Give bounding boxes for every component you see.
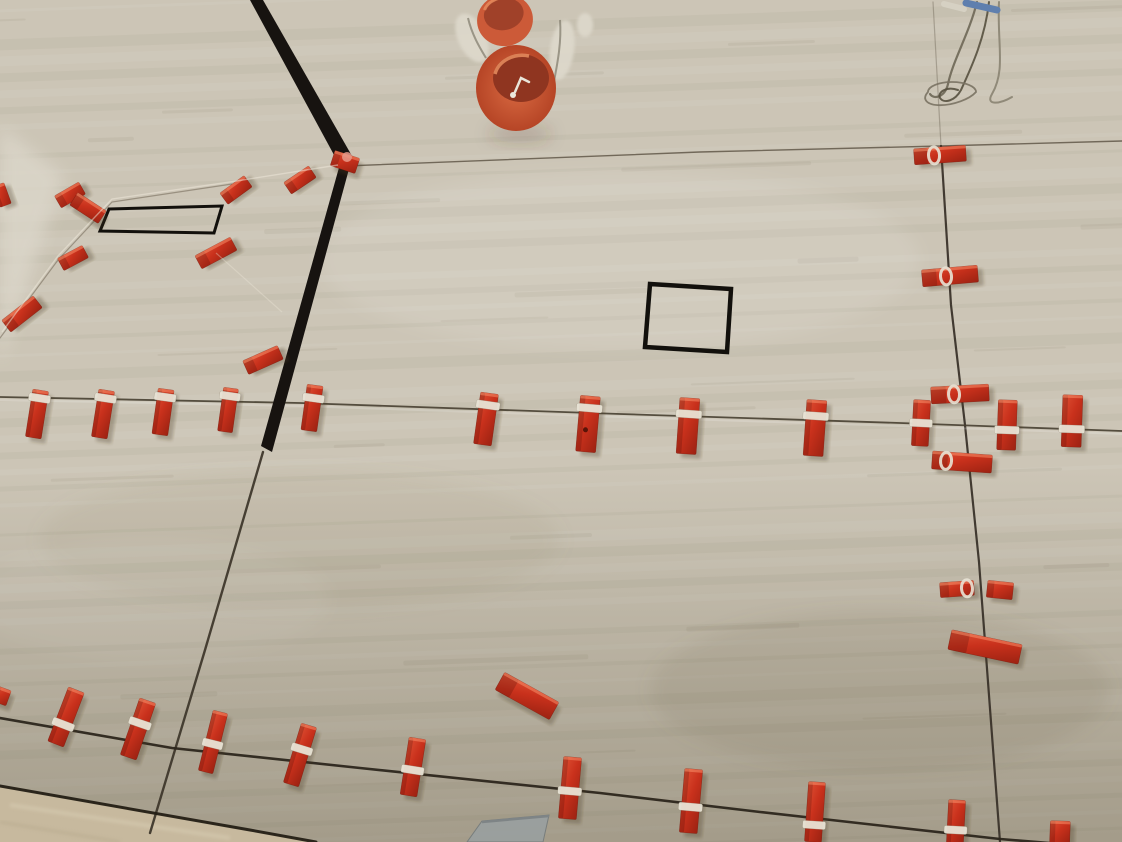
tile-leveling-wedge — [931, 451, 997, 477]
tile-leveling-clip — [1058, 395, 1088, 452]
clip-edge-shade — [1050, 821, 1056, 842]
plaster-blob — [577, 13, 593, 37]
tile-leveling-wedge — [913, 144, 971, 168]
clip-strap — [1059, 425, 1085, 434]
corner-clip-highlight — [342, 152, 352, 162]
clip-strap — [944, 825, 967, 834]
tile-leveling-wedge — [931, 384, 995, 408]
box-inner-wire-tip — [510, 92, 516, 98]
tile-highlight — [320, 170, 920, 350]
clip-strap — [803, 411, 829, 421]
construction-photo — [0, 0, 1122, 842]
clip-strap — [802, 820, 826, 830]
clip-strap — [909, 418, 932, 427]
clip-strap — [676, 409, 702, 419]
photo-canvas — [0, 0, 1122, 842]
clip-strap — [994, 426, 1019, 435]
